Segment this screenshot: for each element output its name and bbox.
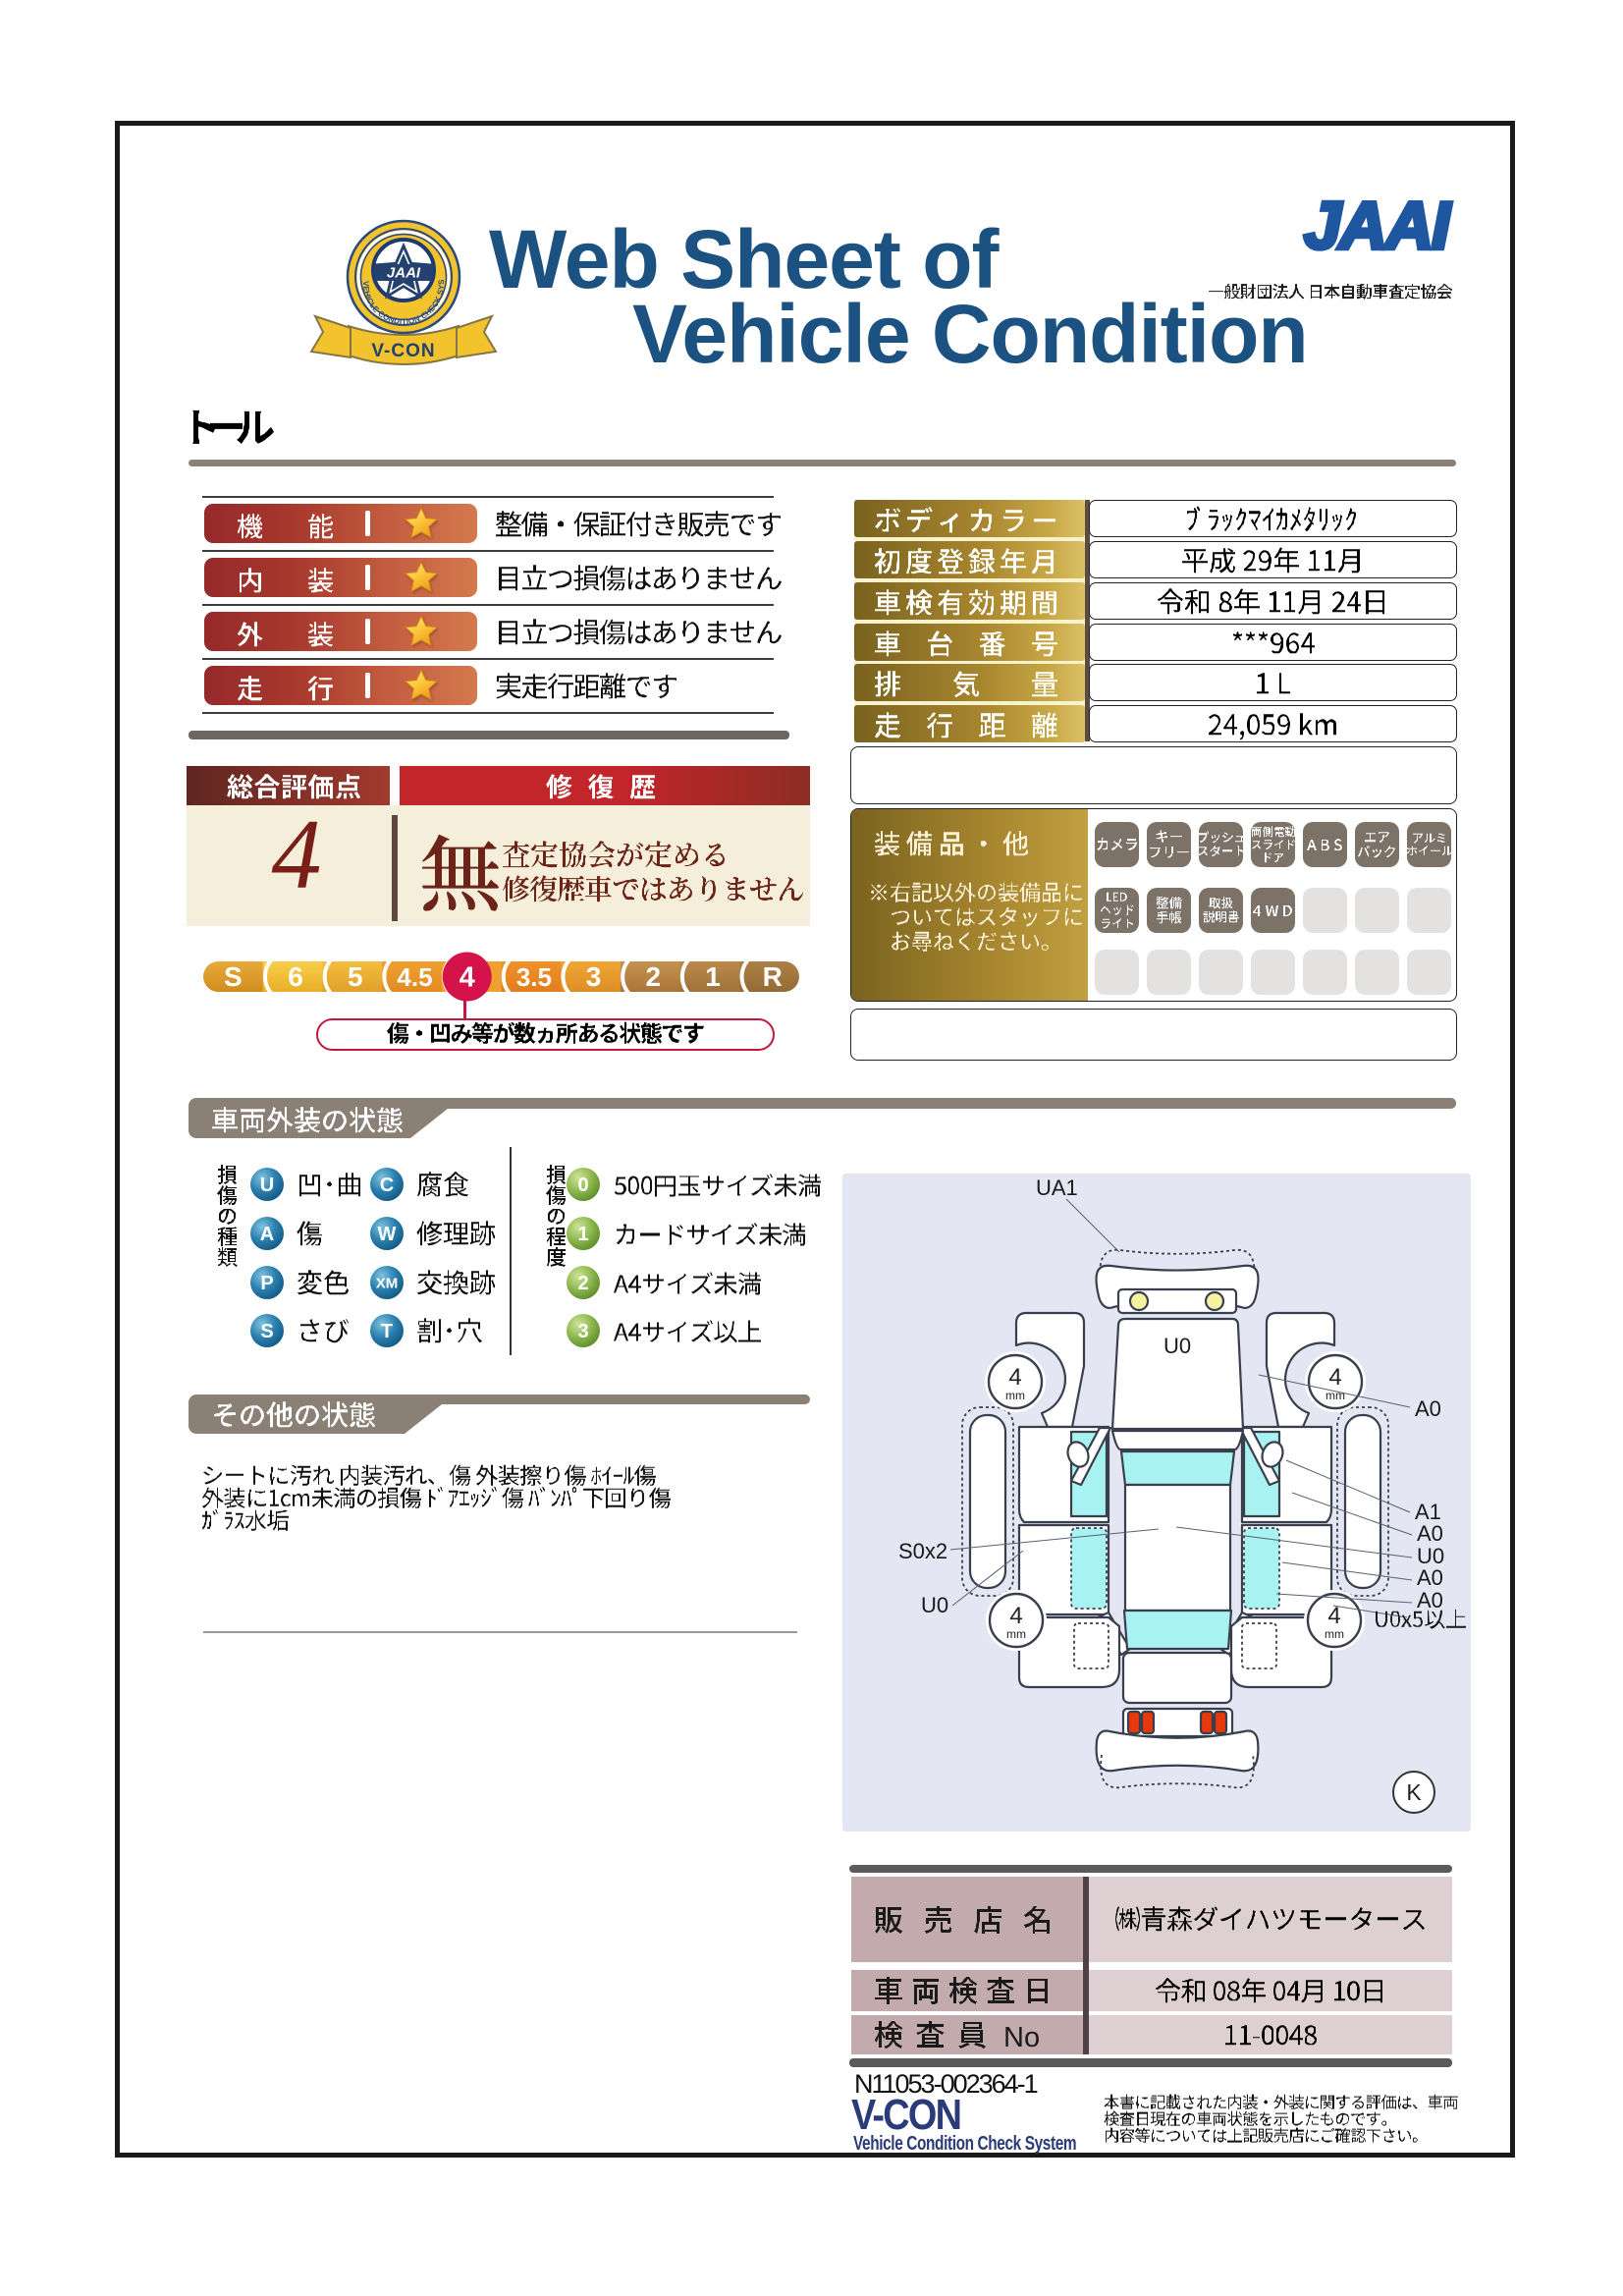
svg-text:A0: A0 <box>1417 1565 1443 1590</box>
svg-text:U0: U0 <box>921 1593 948 1617</box>
svg-text:2: 2 <box>577 1273 588 1294</box>
svg-text:mm: mm <box>1325 1389 1345 1402</box>
svg-text:3.5: 3.5 <box>516 962 552 992</box>
svg-text:C: C <box>380 1175 394 1196</box>
svg-text:mm: mm <box>1005 1389 1025 1402</box>
svg-text:JAAI: JAAI <box>387 265 421 282</box>
svg-text:6: 6 <box>288 961 303 992</box>
svg-text:mm: mm <box>1325 1627 1344 1641</box>
svg-text:4: 4 <box>460 962 475 994</box>
svg-text:W: W <box>378 1224 397 1245</box>
svg-text:R: R <box>763 961 783 992</box>
svg-text:4.5: 4.5 <box>397 962 432 992</box>
svg-text:V-CON: V-CON <box>371 341 435 361</box>
svg-text:UA1: UA1 <box>1036 1175 1078 1200</box>
svg-text:S: S <box>260 1321 273 1342</box>
svg-text:A: A <box>260 1224 274 1245</box>
svg-text:U0: U0 <box>1163 1334 1191 1358</box>
svg-text:2: 2 <box>646 961 662 992</box>
svg-text:0: 0 <box>577 1175 588 1196</box>
svg-text:S0x2: S0x2 <box>898 1539 947 1563</box>
svg-text:3: 3 <box>586 961 602 992</box>
svg-text:4: 4 <box>1009 1603 1022 1629</box>
svg-text:A0: A0 <box>1415 1396 1441 1421</box>
svg-text:U: U <box>260 1175 274 1196</box>
svg-text:3: 3 <box>577 1321 588 1342</box>
svg-text:S: S <box>224 961 243 992</box>
svg-text:XM: XM <box>376 1275 399 1291</box>
svg-text:K: K <box>1406 1779 1422 1805</box>
svg-text:mm: mm <box>1006 1627 1026 1641</box>
svg-text:T: T <box>381 1321 393 1342</box>
svg-text:4: 4 <box>1328 1364 1341 1391</box>
svg-text:P: P <box>260 1273 273 1294</box>
svg-text:1: 1 <box>705 961 721 992</box>
svg-text:5: 5 <box>348 961 363 992</box>
svg-text:4: 4 <box>1008 1364 1021 1391</box>
svg-text:A0: A0 <box>1417 1521 1443 1546</box>
svg-text:1: 1 <box>577 1224 588 1245</box>
